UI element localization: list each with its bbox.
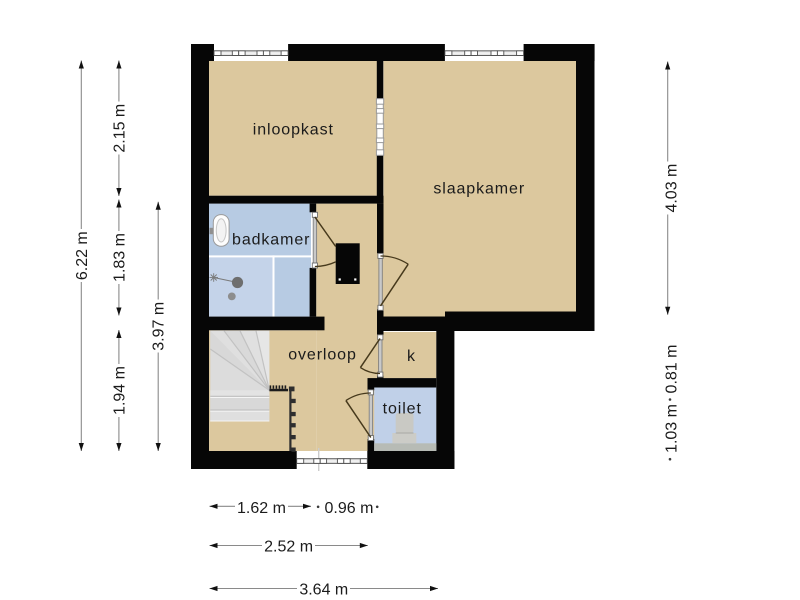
svg-text:2.15 m: 2.15 m — [111, 104, 128, 153]
svg-text:0.96 m: 0.96 m — [325, 500, 374, 517]
svg-text:1.83 m: 1.83 m — [111, 233, 128, 282]
svg-text:0.81 m: 0.81 m — [663, 345, 680, 394]
svg-text:badkamer: badkamer — [232, 232, 310, 249]
svg-text:4.03 m: 4.03 m — [663, 164, 680, 213]
svg-text:1.62 m: 1.62 m — [237, 500, 286, 517]
svg-text:k: k — [407, 348, 416, 365]
svg-text:overloop: overloop — [288, 346, 357, 363]
svg-text:2.52 m: 2.52 m — [264, 538, 313, 555]
svg-text:slaapkamer: slaapkamer — [433, 181, 525, 198]
svg-text:6.22 m: 6.22 m — [74, 231, 91, 280]
svg-text:1.03 m: 1.03 m — [663, 404, 680, 453]
svg-text:inloopkast: inloopkast — [253, 121, 334, 138]
svg-text:3.64 m: 3.64 m — [299, 581, 348, 598]
svg-text:toilet: toilet — [383, 401, 422, 418]
svg-text:3.97 m: 3.97 m — [151, 302, 168, 351]
svg-text:1.94 m: 1.94 m — [111, 366, 128, 415]
